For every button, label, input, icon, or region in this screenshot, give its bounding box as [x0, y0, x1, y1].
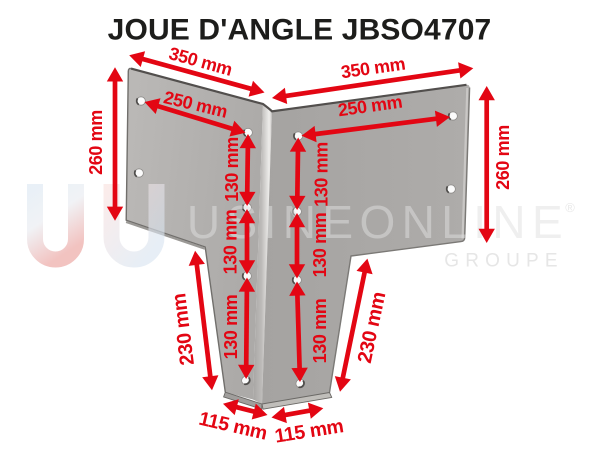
svg-text:130 mm: 130 mm	[310, 213, 330, 278]
svg-text:JOUE D'ANGLE JBSO4707: JOUE D'ANGLE JBSO4707	[108, 14, 492, 47]
svg-text:130 mm: 130 mm	[220, 210, 240, 275]
svg-text:GROUPE: GROUPE	[444, 251, 564, 272]
svg-text:130 mm: 130 mm	[310, 299, 330, 364]
svg-text:®: ®	[565, 200, 575, 215]
svg-text:130 mm: 130 mm	[311, 142, 331, 207]
svg-text:260 mm: 260 mm	[493, 125, 513, 190]
svg-text:260 mm: 260 mm	[86, 110, 106, 175]
svg-text:130 mm: 130 mm	[222, 137, 242, 202]
svg-text:130 mm: 130 mm	[221, 295, 241, 360]
